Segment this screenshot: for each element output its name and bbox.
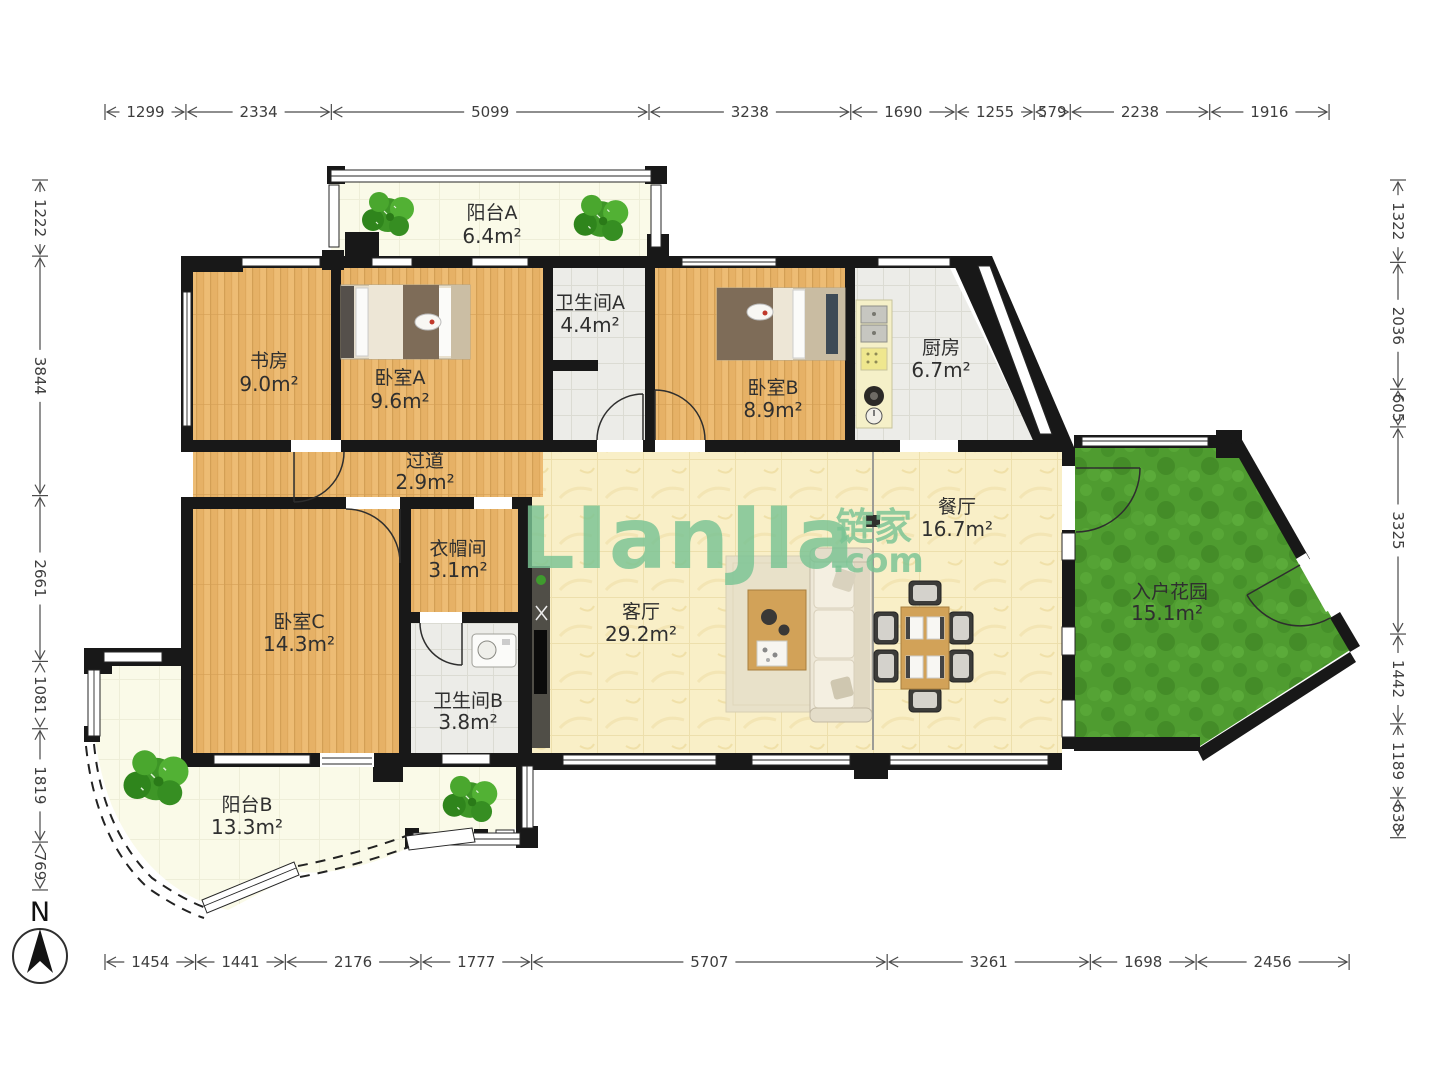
plant-icon	[124, 750, 189, 805]
window	[1062, 533, 1075, 560]
window	[104, 652, 162, 662]
room-label-cloakroom: 衣帽间	[429, 538, 486, 560]
room-label-balcony-b: 阳台B	[221, 794, 272, 816]
compass: N	[13, 897, 67, 983]
room-label-living: 客厅	[622, 601, 660, 623]
bed-a	[341, 285, 470, 359]
window	[242, 258, 320, 266]
dimension-label: 2176	[334, 953, 372, 971]
room-area-garden: 15.1m²	[1131, 601, 1203, 625]
dimension-label: 1698	[1124, 953, 1162, 971]
window	[878, 258, 950, 266]
room-area-cloakroom: 3.1m²	[428, 558, 487, 582]
room-area-balcony-b: 13.3m²	[211, 815, 283, 839]
dimension-label: 579	[1038, 103, 1067, 121]
plant-icon	[443, 776, 498, 822]
floor-plan-page: LIanJIa 链家 .com 阳台A 6.4m² 书房 9.0m² 卧室A 9…	[0, 0, 1440, 1080]
dimension-label: 638	[1389, 804, 1407, 833]
kitchen-counter	[856, 300, 892, 428]
window	[329, 185, 339, 247]
window	[472, 258, 528, 266]
room-area-bath-b: 3.8m²	[438, 710, 497, 734]
bed-b	[717, 288, 845, 360]
room-label-study: 书房	[250, 350, 288, 372]
dimension-label: 3844	[31, 357, 49, 395]
window	[442, 754, 490, 764]
room-label-bath-a: 卫生间A	[555, 292, 625, 314]
room-label-kitchen: 厨房	[922, 337, 960, 359]
dimension-label: 5707	[690, 953, 728, 971]
garden-floor	[1075, 447, 1350, 748]
room-label-dining: 餐厅	[938, 496, 976, 518]
dimension-label: 3325	[1389, 511, 1407, 549]
room-label-garden: 入户花园	[1132, 581, 1208, 603]
room-label-bedroom-c: 卧室C	[273, 611, 324, 633]
window	[651, 185, 661, 247]
room-area-bedroom-b: 8.9m²	[743, 398, 802, 422]
room-label-bedroom-a: 卧室A	[375, 367, 426, 389]
dimension-label: 5099	[471, 103, 509, 121]
ac-unit	[345, 232, 379, 260]
window	[1062, 700, 1075, 737]
watermark-logo-text: LIanJIa	[520, 489, 855, 589]
watermark-com-text: .com	[832, 541, 924, 581]
dimension-label: 1916	[1250, 103, 1288, 121]
tv-unit	[532, 566, 550, 748]
dimension-label: 1442	[1389, 660, 1407, 698]
coffee-table	[748, 590, 806, 670]
dimension-label: 769	[31, 852, 49, 881]
tv-screen	[534, 630, 547, 694]
dimension-label: 1322	[1389, 202, 1407, 240]
hallway-floor	[193, 452, 543, 497]
room-area-bath-a: 4.4m²	[560, 313, 619, 337]
dimension-label: 2238	[1121, 103, 1159, 121]
plant-icon	[574, 195, 629, 241]
dimension-label: 2036	[1389, 307, 1407, 345]
compass-north-label: N	[30, 897, 50, 928]
window	[372, 258, 412, 266]
dimension-label: 3261	[970, 953, 1008, 971]
dimension-label: 2334	[240, 103, 278, 121]
window	[1082, 437, 1208, 446]
dimension-label: 2456	[1254, 953, 1292, 971]
dimension-label: 1819	[31, 766, 49, 804]
dimension-label: 1777	[457, 953, 495, 971]
room-area-study: 9.0m²	[239, 372, 298, 396]
room-area-balcony-a: 6.4m²	[462, 224, 521, 248]
room-area-bedroom-c: 14.3m²	[263, 632, 335, 656]
room-area-kitchen: 6.7m²	[911, 358, 970, 382]
dimension-label: 3238	[731, 103, 769, 121]
washing-machine	[472, 634, 516, 667]
window	[522, 766, 533, 828]
room-area-bedroom-a: 9.6m²	[370, 389, 429, 413]
dimension-label: 1299	[126, 103, 164, 121]
dimension-label: 1690	[884, 103, 922, 121]
dimension-label: 605	[1389, 394, 1407, 423]
room-label-balcony-a: 阳台A	[467, 202, 518, 224]
room-label-bath-b: 卫生间B	[433, 690, 503, 712]
room-label-bedroom-b: 卧室B	[747, 377, 798, 399]
window	[214, 755, 310, 764]
room-area-hallway: 2.9m²	[395, 470, 454, 494]
dimension-label: 1081	[31, 676, 49, 714]
dimension-label: 1189	[1389, 742, 1407, 780]
dimension-label: 1441	[221, 953, 259, 971]
compass-needle-icon	[27, 929, 53, 973]
plant-icon	[362, 192, 414, 236]
room-label-hallway: 过道	[406, 450, 444, 472]
dimension-label: 1454	[131, 953, 169, 971]
floor-plan-image: LIanJIa 链家 .com 阳台A 6.4m² 书房 9.0m² 卧室A 9…	[0, 0, 1440, 1080]
room-area-dining: 16.7m²	[921, 517, 993, 541]
dimension-label: 1255	[976, 103, 1014, 121]
dimension-label: 1222	[31, 199, 49, 237]
room-area-living: 29.2m²	[605, 622, 677, 646]
window	[1062, 627, 1075, 655]
dimension-label: 2661	[31, 559, 49, 597]
